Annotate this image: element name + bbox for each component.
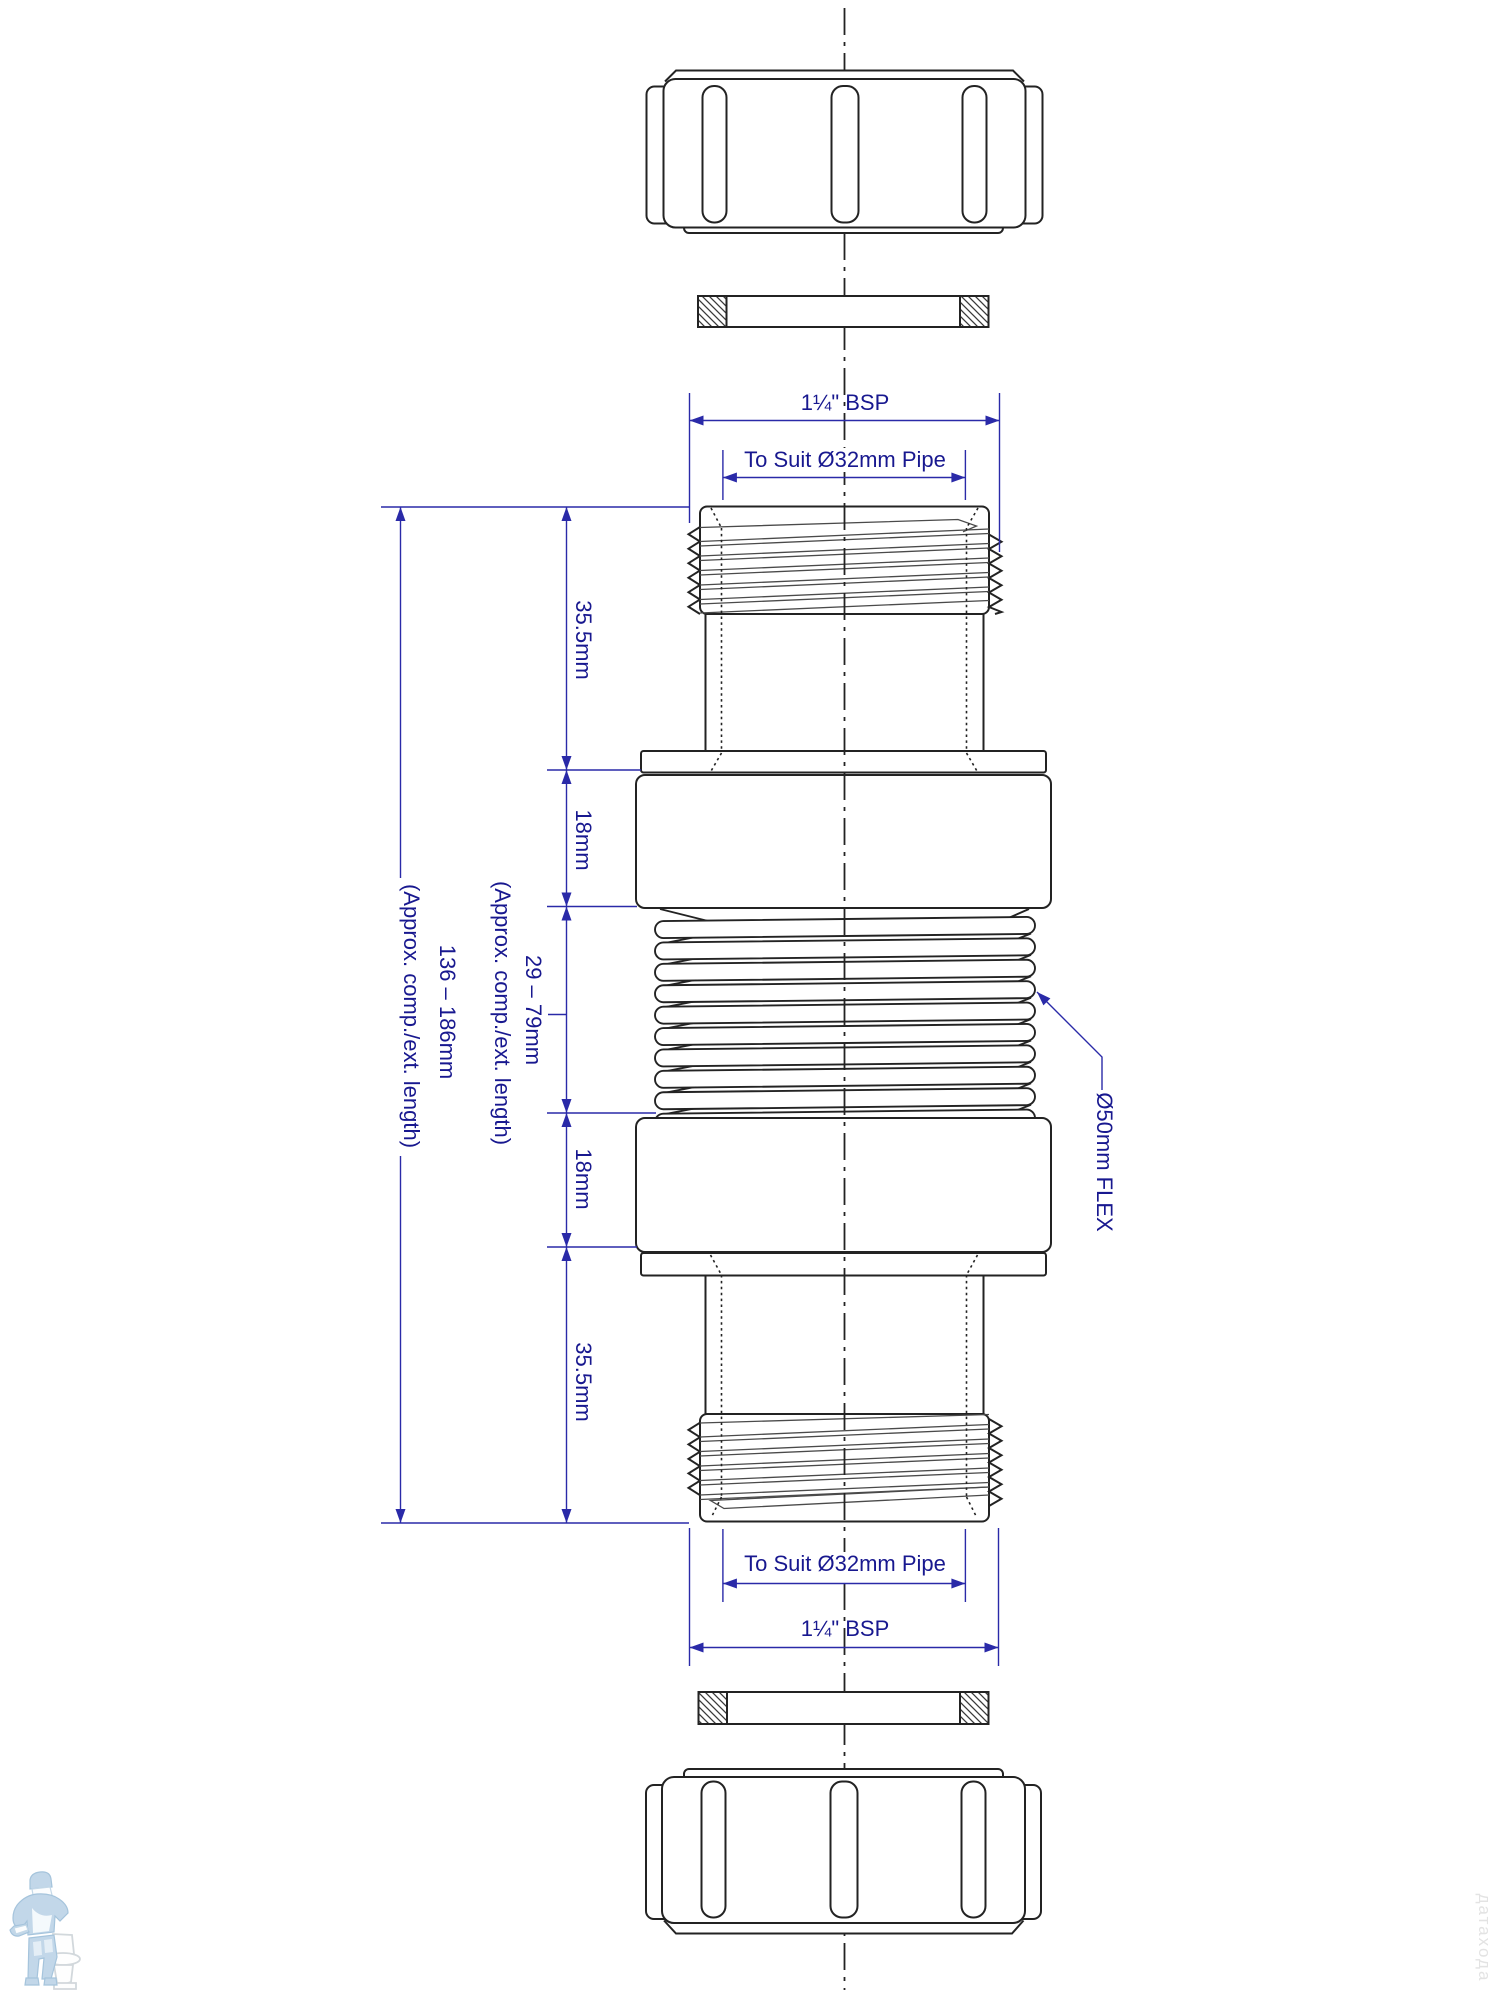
svg-text:18mm: 18mm [571, 1148, 596, 1209]
svg-text:29 – 79mm: 29 – 79mm [521, 955, 546, 1065]
svg-text:датахода: датахода [1475, 1894, 1494, 1983]
svg-text:To Suit Ø32mm Pipe: To Suit Ø32mm Pipe [744, 447, 946, 472]
svg-text:(Approx. comp./ext. length): (Approx. comp./ext. length) [490, 881, 515, 1145]
svg-text:1¼" BSP: 1¼" BSP [801, 390, 890, 415]
svg-text:35.5mm: 35.5mm [571, 1342, 596, 1421]
svg-text:(Approx. comp./ext. length): (Approx. comp./ext. length) [399, 884, 424, 1148]
svg-text:Ø50mm FLEX: Ø50mm FLEX [1092, 1092, 1117, 1232]
svg-text:136 – 186mm: 136 – 186mm [435, 945, 460, 1080]
svg-text:18mm: 18mm [571, 809, 596, 870]
svg-text:1¼" BSP: 1¼" BSP [801, 1616, 890, 1641]
svg-text:To Suit Ø32mm Pipe: To Suit Ø32mm Pipe [744, 1551, 946, 1576]
svg-text:35.5mm: 35.5mm [571, 600, 596, 679]
